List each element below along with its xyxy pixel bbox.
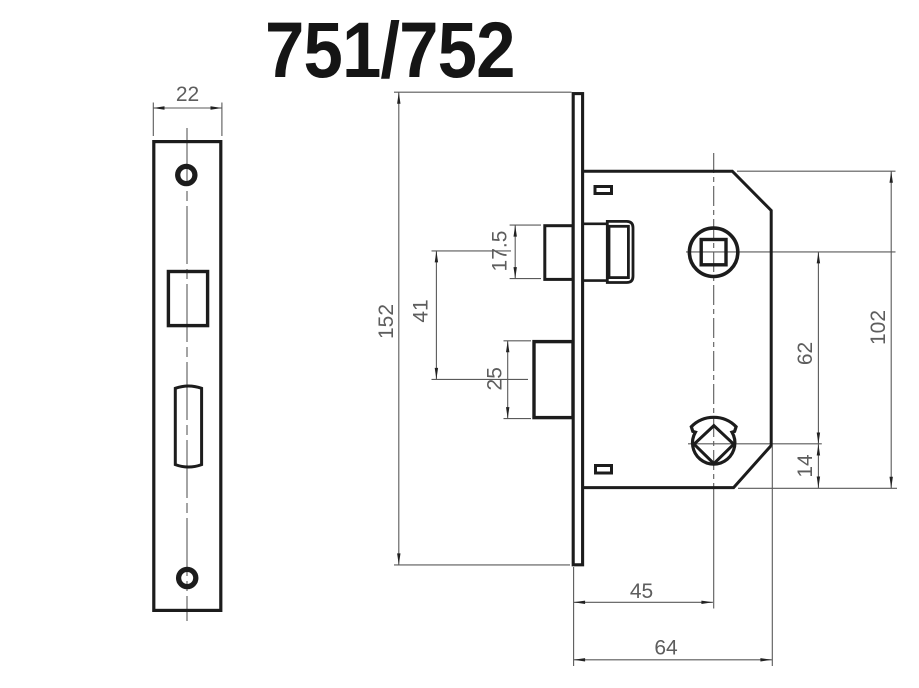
svg-text:64: 64 xyxy=(654,637,678,660)
svg-text:41: 41 xyxy=(410,299,433,322)
svg-text:152: 152 xyxy=(375,304,398,339)
svg-text:45: 45 xyxy=(630,580,653,603)
svg-text:17.5: 17.5 xyxy=(489,231,512,272)
svg-text:25: 25 xyxy=(484,367,507,390)
svg-text:14: 14 xyxy=(794,454,817,478)
svg-text:62: 62 xyxy=(794,342,817,365)
svg-text:22: 22 xyxy=(176,83,199,106)
svg-text:102: 102 xyxy=(867,310,890,345)
